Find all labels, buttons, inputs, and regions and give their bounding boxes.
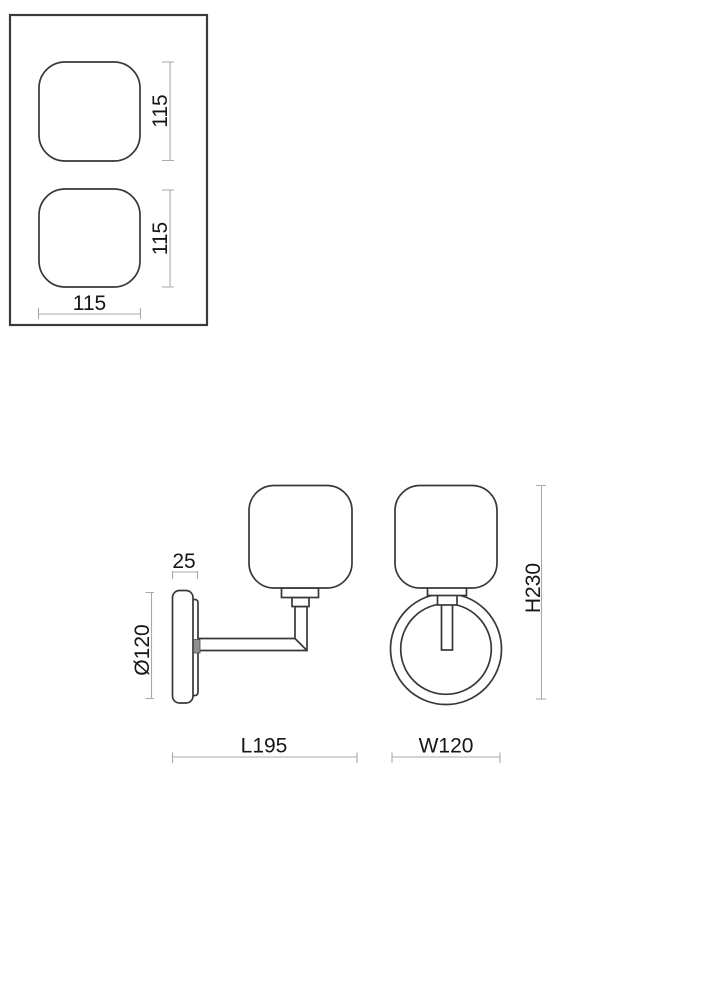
dim-projection-length: L195	[173, 735, 358, 764]
dim-backplate-diameter: Ø120	[131, 593, 154, 699]
dim-backplate-diameter-label: Ø120	[131, 624, 154, 675]
dim-projection-length-label: L195	[241, 735, 288, 758]
dim-overall-height-label: H230	[522, 563, 545, 613]
mounting-template-view: 115 115 115	[10, 15, 207, 325]
wall-sconce-technical-drawing: 115 115 115	[0, 0, 707, 1000]
side-view: 25 Ø120 L195	[131, 486, 357, 764]
dim-backplate-depth: 25	[172, 550, 197, 579]
arm-wall-joint	[194, 640, 201, 654]
dim-template-bottom-height: 115	[149, 190, 174, 287]
dim-template-bottom-height-label: 115	[149, 222, 172, 255]
shade-front	[395, 486, 497, 589]
dimension-drawing-page: 115 115 115	[0, 0, 707, 1000]
arm-tube-side	[199, 607, 307, 651]
dim-template-width: 115	[39, 292, 141, 319]
backplate-side	[173, 591, 194, 704]
dim-overall-width-label: W120	[419, 735, 474, 758]
arm-stem-front	[442, 605, 453, 651]
template-cutout-square-bottom	[39, 189, 140, 287]
front-view: H230 W120	[391, 486, 547, 764]
dim-backplate-depth-label: 25	[172, 550, 195, 573]
template-cutout-square-top	[39, 62, 140, 161]
dim-overall-width: W120	[392, 735, 500, 764]
dim-template-top-height-label: 115	[149, 94, 172, 127]
dim-template-top-height: 115	[149, 62, 174, 161]
dim-template-width-label: 115	[73, 292, 106, 315]
dim-overall-height: H230	[522, 486, 546, 700]
shade-side	[249, 486, 352, 589]
socket-neck-side	[292, 598, 309, 607]
socket-collar-side	[282, 588, 319, 598]
socket-neck-front	[438, 595, 458, 605]
